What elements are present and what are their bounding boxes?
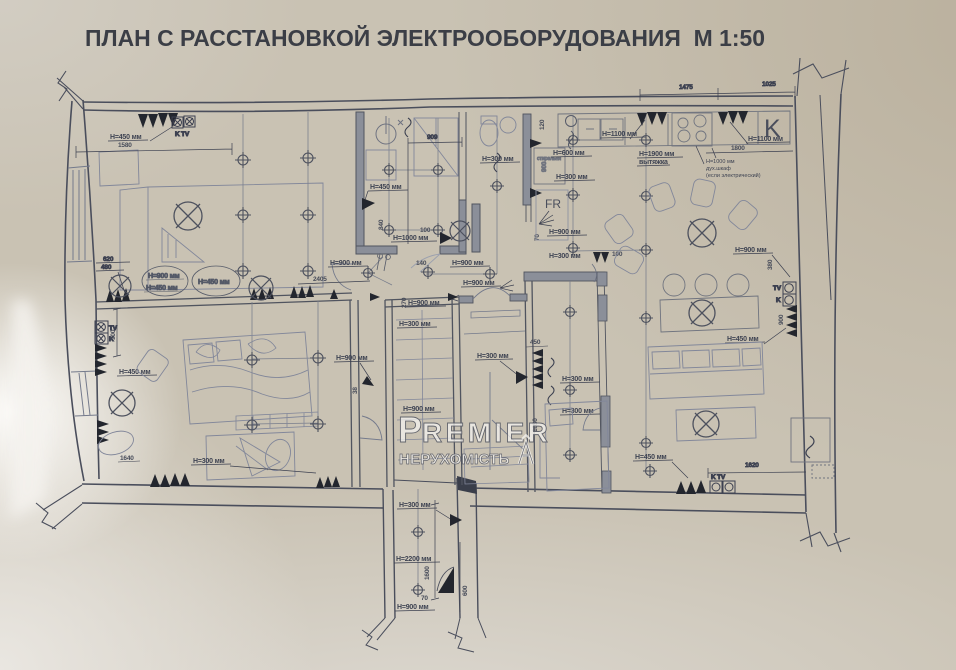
svg-text:38: 38 — [352, 387, 359, 394]
svg-text:900: 900 — [541, 161, 548, 172]
svg-text:480: 480 — [101, 264, 112, 271]
svg-text:H=1000 мм: H=1000 мм — [393, 235, 428, 242]
svg-text:140: 140 — [416, 260, 427, 267]
svg-text:P: P — [398, 409, 422, 450]
svg-text:TV: TV — [773, 285, 782, 292]
svg-text:620: 620 — [103, 256, 114, 263]
svg-text:1600: 1600 — [424, 566, 431, 580]
svg-text:REMIER: REMIER — [422, 417, 551, 448]
svg-text:ПЛАН С РАССТАНОВКОЙ ЭЛЕКТРООБО: ПЛАН С РАССТАНОВКОЙ ЭЛЕКТРООБОРУДОВАНИЯ … — [85, 24, 765, 51]
svg-text:450: 450 — [530, 339, 541, 346]
svg-text:2405: 2405 — [313, 276, 327, 283]
svg-text:1025: 1025 — [762, 81, 776, 88]
svg-text:НЕРУХОМІСТЬ: НЕРУХОМІСТЬ — [399, 451, 510, 468]
svg-text:H=300 мм: H=300 мм — [549, 253, 581, 260]
svg-text:H=2200 мм: H=2200 мм — [396, 556, 431, 563]
svg-text:1800: 1800 — [731, 145, 745, 152]
svg-text:H=1900 мм: H=1900 мм — [639, 151, 674, 158]
svg-text:(если электрический): (если электрический) — [706, 172, 761, 179]
svg-text:270: 270 — [401, 297, 408, 308]
svg-text:600: 600 — [462, 585, 469, 596]
svg-text:1620: 1620 — [745, 462, 759, 469]
svg-text:1475: 1475 — [679, 84, 693, 91]
svg-text:H=450 мм: H=450 мм — [198, 279, 230, 286]
svg-text:дух.шкаф: дух.шкаф — [706, 166, 731, 172]
svg-text:909: 909 — [427, 134, 438, 141]
svg-text:900: 900 — [110, 329, 117, 340]
svg-text:100: 100 — [420, 227, 431, 234]
svg-text:840: 840 — [378, 219, 385, 230]
svg-text:FR: FR — [545, 197, 561, 211]
svg-text:70: 70 — [421, 595, 428, 602]
svg-text:900: 900 — [778, 314, 785, 325]
svg-text:120: 120 — [539, 119, 546, 130]
svg-text:380: 380 — [767, 259, 774, 270]
svg-text:1640: 1640 — [120, 455, 134, 462]
svg-text:1580: 1580 — [118, 142, 132, 149]
svg-text:K: K — [776, 297, 781, 304]
svg-text:H=1000 мм: H=1000 мм — [706, 159, 735, 165]
svg-text:K TV: K TV — [711, 474, 726, 481]
svg-text:K TV: K TV — [175, 131, 190, 138]
